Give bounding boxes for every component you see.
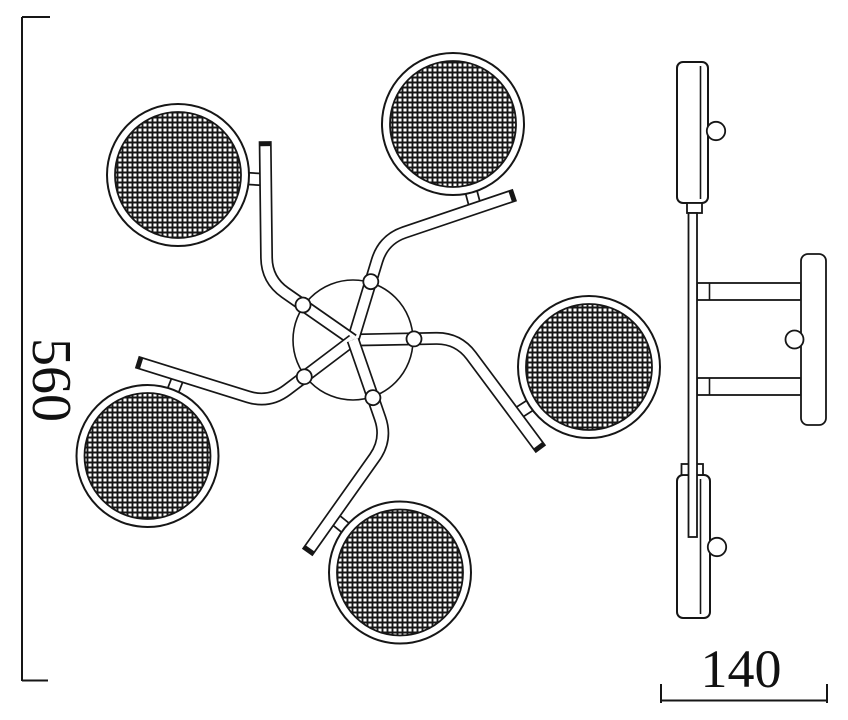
upper-collar [687, 203, 702, 213]
shade-upper-left [107, 104, 249, 246]
shade-lower-left [77, 385, 219, 527]
shade-mesh [337, 510, 463, 636]
lamp-holder [708, 538, 726, 556]
shade-mesh [390, 61, 516, 187]
shade-top [382, 53, 524, 195]
shade-mesh [85, 393, 211, 519]
dimension-width-label: 140 [701, 639, 782, 699]
dimension-height-label: 560 [20, 338, 82, 422]
arm-joint [407, 331, 422, 346]
technical-drawing-page: 560 [0, 0, 848, 720]
shade-bottom [329, 502, 471, 644]
mount-plate [801, 254, 826, 425]
mount-screw [786, 331, 804, 349]
mount-arm-lower [697, 378, 801, 395]
shade-mesh [526, 304, 652, 430]
stem-tube [689, 213, 698, 537]
lamp-holder [707, 122, 725, 140]
shade-right [518, 296, 660, 438]
shade-body [677, 62, 708, 203]
shade-mesh [115, 112, 241, 238]
chandelier-dimension-drawing: 560 [0, 0, 848, 720]
mount-arm-upper [697, 283, 801, 300]
